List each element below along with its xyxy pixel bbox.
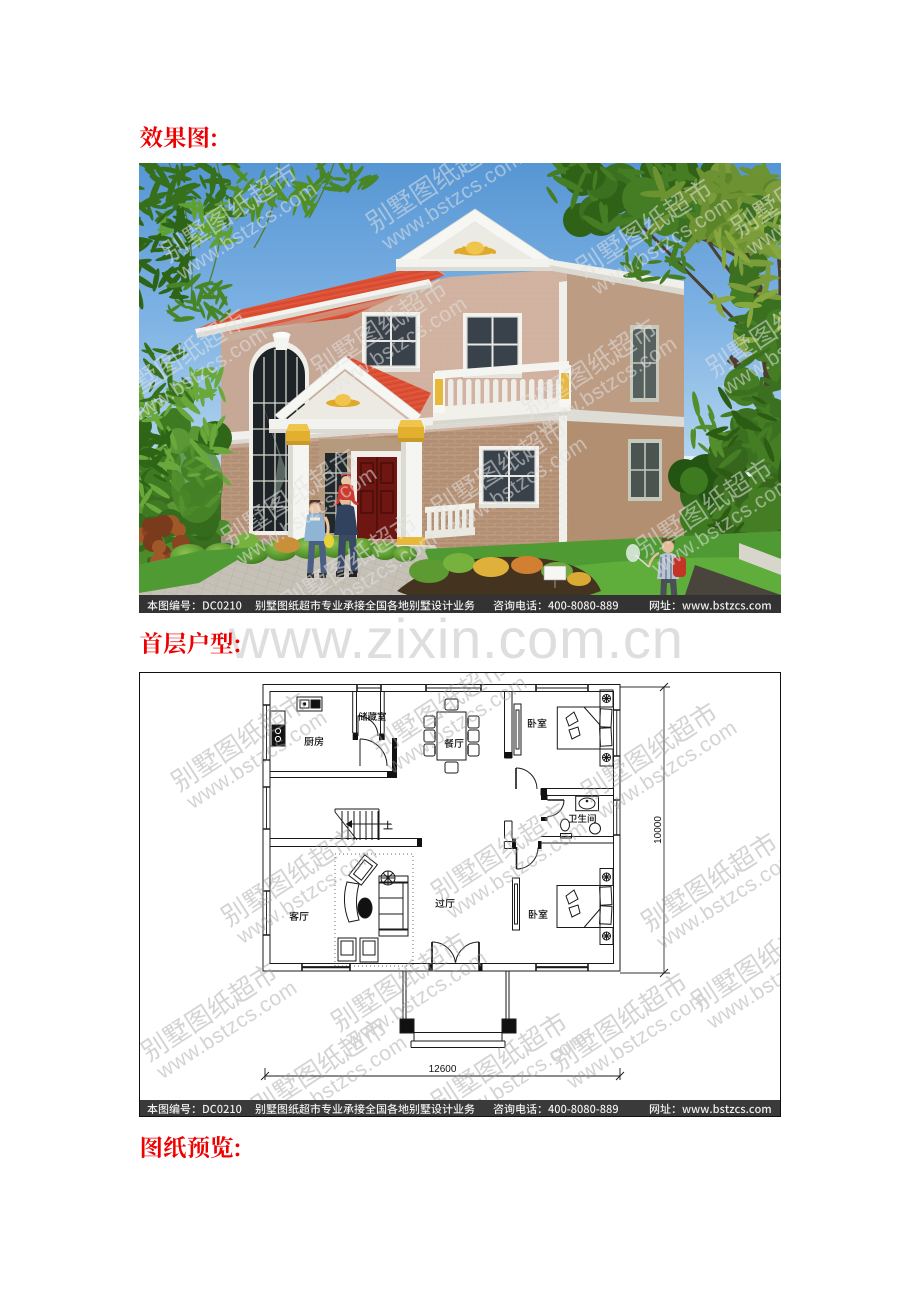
svg-text:www.zixin.com.cn: www.zixin.com.cn (228, 607, 684, 670)
